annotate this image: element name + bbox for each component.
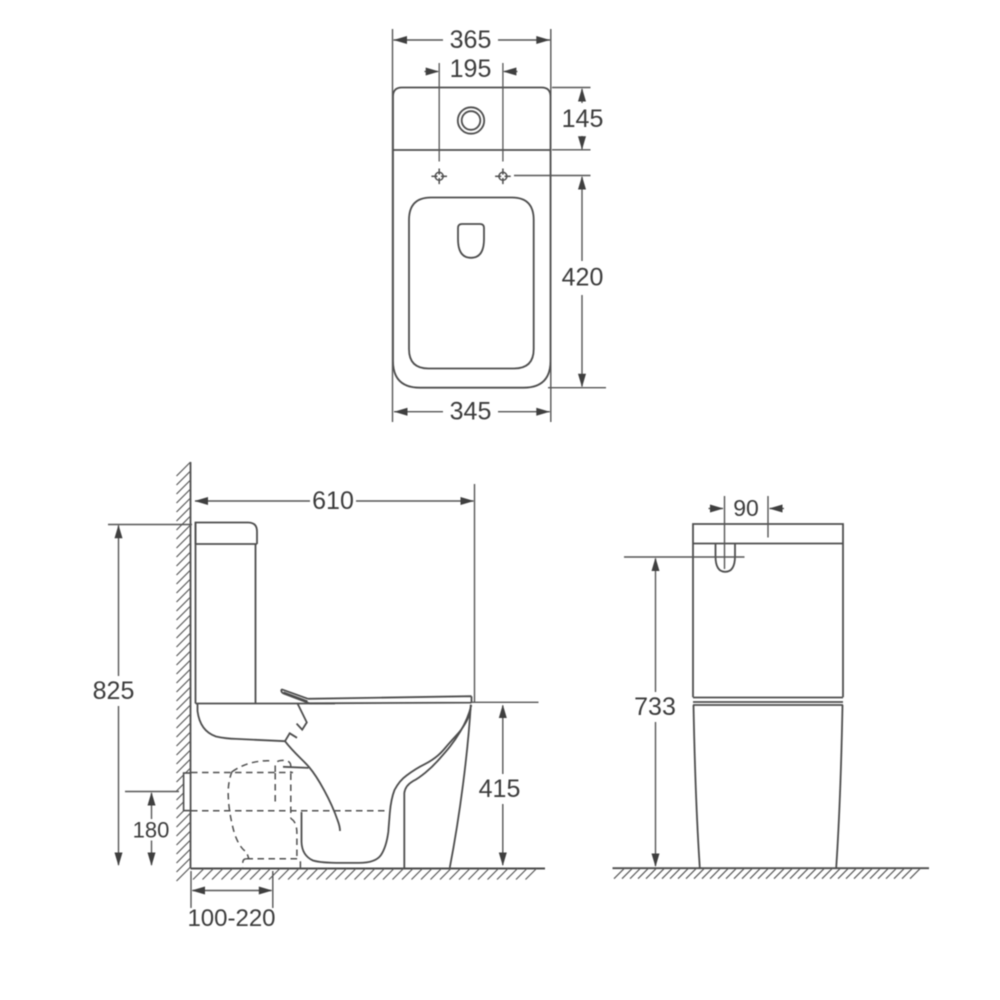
svg-text:733: 733 (634, 693, 676, 721)
svg-text:145: 145 (562, 105, 604, 133)
svg-text:365: 365 (450, 26, 492, 54)
svg-text:420: 420 (562, 264, 604, 292)
svg-text:195: 195 (450, 55, 492, 83)
svg-text:825: 825 (93, 677, 135, 705)
svg-text:90: 90 (733, 495, 759, 521)
svg-text:345: 345 (450, 398, 492, 426)
svg-text:180: 180 (133, 818, 170, 843)
svg-text:100-220: 100-220 (187, 905, 275, 932)
svg-text:610: 610 (312, 487, 354, 515)
svg-text:415: 415 (479, 775, 521, 803)
